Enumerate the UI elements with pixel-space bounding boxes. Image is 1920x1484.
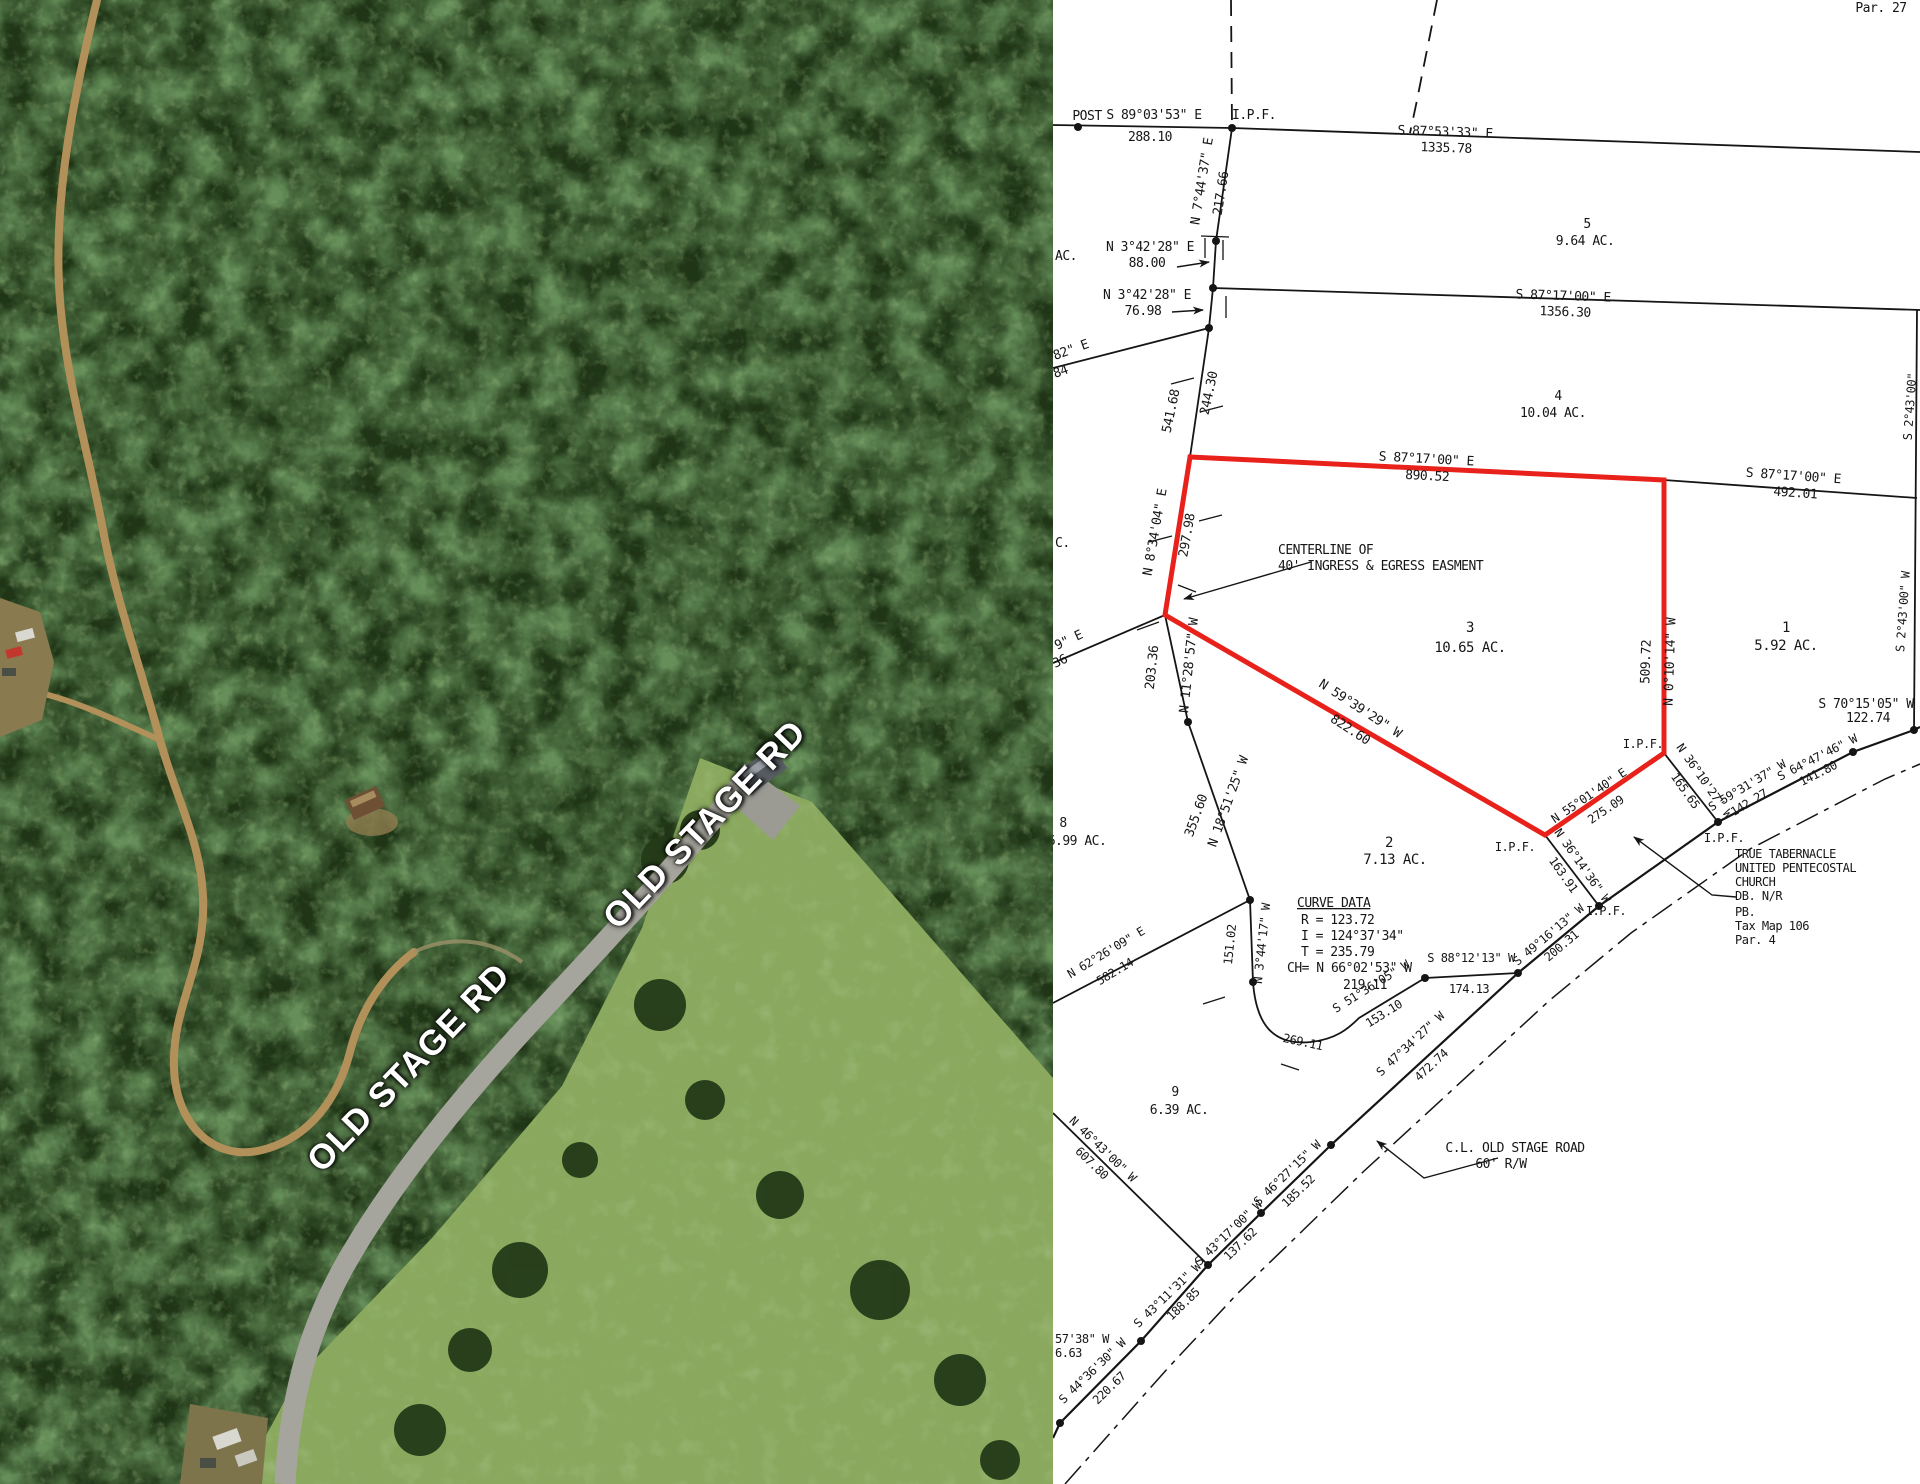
survey-point — [1056, 1419, 1064, 1427]
plat-label: 203.36 — [1143, 645, 1163, 690]
plat-label: CURVE DATA — [1297, 896, 1371, 911]
plat-label: 9 — [1171, 1085, 1178, 1100]
plat-label: Tax Map 106 — [1735, 919, 1809, 933]
plat-label: N 3°42'28" E — [1106, 240, 1194, 255]
plat-label: 40' INGRESS & EGRESS EASMENT — [1278, 559, 1484, 574]
plat-label: I.P.F. — [1623, 737, 1663, 751]
plat-label: 174.13 — [1449, 982, 1490, 996]
plat-label: 7.13 AC. — [1363, 852, 1426, 868]
plat-label: 2 — [1385, 835, 1393, 851]
survey-point — [1910, 726, 1918, 734]
plat-label: 9" E — [1053, 628, 1085, 654]
plat-label: 4 — [1554, 389, 1562, 404]
aerial-photo — [0, 0, 1053, 1484]
plat-label: S 87°17'00" E — [1745, 466, 1841, 488]
plat-label: 288.10 — [1128, 130, 1172, 145]
plat-label: 88.00 — [1129, 256, 1166, 271]
plat-label: 890.52 — [1405, 468, 1450, 485]
plat-label: 6.63 — [1055, 1346, 1082, 1360]
survey-point — [1137, 1337, 1145, 1345]
plat-label: 151.02 — [1221, 924, 1239, 966]
plat-label: 1335.78 — [1420, 140, 1472, 157]
plat-label: S 2°43'00" W — [1893, 570, 1913, 653]
plat-label: 5 — [1583, 217, 1590, 232]
plat-label: 509.72 — [1638, 640, 1655, 684]
tick-mark — [1281, 1064, 1299, 1070]
boundary-line — [1914, 310, 1917, 730]
plat-label: N 18°51'25" W — [1205, 754, 1252, 849]
plat-label: DB. N/R — [1735, 889, 1783, 903]
plat-label: 10.04 AC. — [1520, 406, 1586, 421]
plat-label: S 88°12'13" W — [1427, 951, 1516, 965]
plat-label: 84 — [1053, 362, 1071, 381]
plat-label: 5.92 AC. — [1754, 638, 1817, 654]
survey-point — [1209, 284, 1217, 292]
plat-label: TRUE TABERNACLE — [1735, 847, 1836, 861]
tick-mark — [1199, 515, 1222, 521]
plat-label: S 70°15'05" W — [1818, 697, 1914, 712]
plat-label: I.P.F. — [1586, 904, 1626, 918]
plat-label: 9.64 AC. — [1556, 234, 1615, 249]
survey-point — [1205, 324, 1213, 332]
survey-point — [1212, 237, 1220, 245]
bottom-left-structures — [180, 1404, 268, 1484]
survey-point — [1421, 974, 1429, 982]
plat-label: N 11°28'57" W — [1177, 617, 1202, 714]
plat-label: PB. — [1735, 905, 1755, 919]
dimension-leader-arrow — [1172, 310, 1203, 312]
survey-point — [1246, 896, 1254, 904]
plat-drawing: POSTS 89°03'53" E288.10I.P.F.Par. 27S 87… — [1053, 0, 1920, 1484]
plat-label: 36 — [1053, 652, 1070, 672]
plat-label: R = 123.72 — [1301, 913, 1374, 928]
plat-label: AC. — [1055, 249, 1077, 264]
plat-label: 10.65 AC. — [1434, 640, 1505, 656]
plat-label: 76.98 — [1125, 304, 1162, 319]
plat-label: 355.60 — [1182, 793, 1211, 839]
tick-mark — [1203, 997, 1225, 1004]
plat-label: 217.66 — [1211, 171, 1233, 217]
plat-label: S 87°53'33" E — [1397, 123, 1493, 141]
plat-label: 3 — [1466, 620, 1474, 636]
plat-label: Par. 27 — [1855, 1, 1906, 16]
plat-label: C.L. OLD STAGE ROAD — [1445, 1141, 1585, 1156]
plat-label: N 3°42'28" E — [1103, 288, 1191, 303]
boundary-line — [1053, 900, 1250, 1003]
screenshot-root: OLD STAGE RD OLD STAGE RD POSTS 89°03'53… — [0, 0, 1920, 1484]
plat-label: UNITED PENTECOSTAL — [1735, 861, 1856, 875]
plat-lines — [1053, 0, 1920, 1484]
boundary-line — [1425, 973, 1518, 978]
aerial-photo-panel: OLD STAGE RD OLD STAGE RD — [0, 0, 1053, 1484]
plat-label: 492.01 — [1773, 484, 1818, 502]
plat-label: 6.39 AC. — [1150, 1103, 1209, 1118]
plat-label: C. — [1055, 536, 1070, 551]
plat-label: I = 124°37'34" — [1301, 929, 1404, 944]
plat-label: POST — [1072, 109, 1102, 124]
tick-mark — [1201, 236, 1229, 237]
plat-label: 122.74 — [1846, 711, 1891, 726]
survey-point — [1184, 718, 1192, 726]
survey-point — [1327, 1141, 1335, 1149]
plat-label: 8 — [1059, 816, 1066, 831]
plat-label: I.P.F. — [1495, 840, 1535, 854]
tick-mark — [1178, 585, 1196, 592]
plat-label: 1 — [1782, 620, 1790, 636]
plat-label: N 3°44'17" W — [1251, 901, 1273, 984]
plat-label: 57'38" W — [1055, 1332, 1110, 1346]
boundary-line-dashed — [1410, 0, 1437, 133]
plat-label: I.P.F. — [1232, 108, 1276, 123]
plat-labels: POSTS 89°03'53" E288.10I.P.F.Par. 27S 87… — [1053, 1, 1919, 1407]
plat-label: 269.11 — [1282, 1031, 1325, 1053]
plat-label: I.P.F. — [1704, 831, 1744, 845]
plat-panel: POSTS 89°03'53" E288.10I.P.F.Par. 27S 87… — [1053, 0, 1920, 1484]
boundary-line — [1053, 1113, 1208, 1265]
plat-label: N 0°10'14" W — [1661, 617, 1679, 706]
dimension-leader-arrow — [1177, 262, 1209, 267]
survey-point — [1714, 818, 1722, 826]
survey-point — [1074, 123, 1082, 131]
plat-label: S 89°03'53" E — [1106, 108, 1201, 123]
plat-label: Par. 4 — [1735, 933, 1776, 947]
survey-point — [1514, 969, 1522, 977]
survey-point — [1849, 748, 1857, 756]
plat-label: 541.68 — [1160, 388, 1184, 434]
boundary-line — [1232, 128, 1920, 152]
plat-label: T = 235.79 — [1301, 945, 1374, 960]
plat-label: 60' R/W — [1475, 1157, 1527, 1172]
plat-label: 6.99 AC. — [1053, 834, 1106, 849]
plat-label: 1356.30 — [1539, 304, 1591, 321]
plat-label: S 87°17'00" E — [1515, 287, 1611, 305]
plat-label: CENTERLINE OF — [1278, 543, 1374, 558]
survey-point — [1228, 124, 1236, 132]
tick-mark — [1171, 378, 1194, 384]
plat-label: CHURCH — [1735, 875, 1776, 889]
plat-label: N 8°34'04" E — [1141, 488, 1171, 577]
